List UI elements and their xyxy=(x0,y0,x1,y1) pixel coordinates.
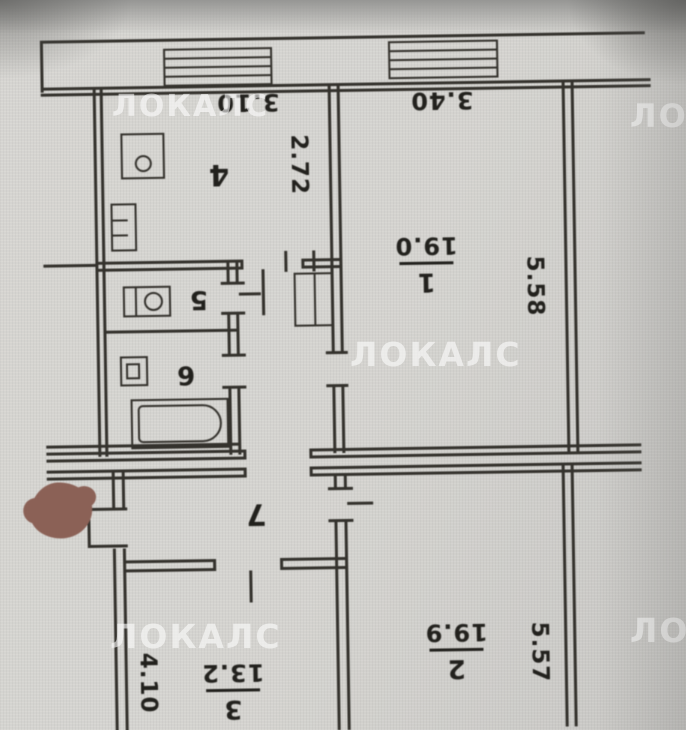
door-tick xyxy=(328,487,353,490)
door-tick xyxy=(284,251,287,272)
door-tick xyxy=(221,312,245,315)
wall-cap xyxy=(240,260,243,270)
door-leaf xyxy=(347,502,373,505)
wall-segment xyxy=(562,463,569,727)
door-tick xyxy=(221,282,245,285)
watermark-clipped: ЛО xyxy=(630,100,686,132)
toilet-tank-line xyxy=(135,288,137,315)
door-leaf xyxy=(249,570,253,602)
sink-detail xyxy=(113,219,128,221)
wall-cap xyxy=(280,558,283,570)
wall-segment xyxy=(332,387,336,453)
room-area: 19.0 xyxy=(394,234,458,259)
balcony-window-hatch xyxy=(163,47,273,87)
washbasin-bowl xyxy=(126,363,140,379)
wall-segment xyxy=(344,521,350,730)
hatch-line xyxy=(388,67,498,71)
wall-segment xyxy=(227,314,231,356)
marker-blob xyxy=(30,482,93,539)
dimension-label: 2.72 xyxy=(284,124,313,204)
washbasin-icon xyxy=(120,356,148,386)
wall-cap xyxy=(301,259,304,269)
wall-stub xyxy=(43,264,95,268)
wall-cap xyxy=(244,468,247,478)
balcony-outline-end xyxy=(40,41,44,93)
door-tick xyxy=(312,250,315,271)
closet-divider xyxy=(314,274,317,324)
wall-segment xyxy=(309,450,641,458)
wall-segment xyxy=(106,329,237,334)
floor-plan: 3.10 3.40 2.72 5.58 5.57 4.10 4 5 6 7 1 … xyxy=(0,0,686,730)
wall-segment xyxy=(112,470,116,511)
wall-segment xyxy=(126,559,216,563)
room-number-label: 5 xyxy=(178,278,221,321)
room-number-label: 6 xyxy=(165,353,208,396)
wall-segment xyxy=(303,258,342,262)
wall-segment xyxy=(337,83,344,353)
hatch-line xyxy=(388,58,498,62)
watermark-clipped: ЛО xyxy=(630,614,686,647)
room-number-label: 4 xyxy=(198,154,241,197)
wall-cap xyxy=(310,466,313,476)
wall-segment xyxy=(303,265,342,269)
wall-segment xyxy=(95,260,243,265)
wall-segment xyxy=(226,260,229,284)
wall-cap xyxy=(309,448,312,458)
balcony-outline xyxy=(40,31,645,44)
wall-segment xyxy=(571,79,580,451)
room-number: 1 xyxy=(417,269,435,295)
wall-cap xyxy=(243,450,246,460)
label-divider xyxy=(399,262,453,266)
stove-burner-icon xyxy=(135,155,152,172)
wall-segment xyxy=(46,457,246,463)
wall-segment xyxy=(47,468,247,474)
door-tick xyxy=(326,351,348,354)
watermark: ЛОКАЛС xyxy=(110,620,282,653)
wall-segment xyxy=(341,387,345,453)
label-divider xyxy=(206,689,260,693)
hatch-line xyxy=(163,56,272,60)
dimension-label: 5.57 xyxy=(525,612,554,692)
room-2-label: 2 19.9 xyxy=(416,611,497,692)
closet xyxy=(294,272,335,327)
wall-segment xyxy=(334,521,340,730)
room-area: 13.2 xyxy=(201,661,265,686)
room-1-label: 1 19.0 xyxy=(386,224,467,305)
wall-segment xyxy=(571,462,578,726)
door-leaf xyxy=(239,292,261,295)
room-area: 19.9 xyxy=(424,620,488,645)
wall-cap xyxy=(213,559,216,571)
door-tick xyxy=(326,384,348,387)
room-number: 2 xyxy=(448,656,466,682)
room-number-label: 7 xyxy=(235,493,278,536)
door-tick xyxy=(328,519,353,522)
bathtub-inner xyxy=(138,404,223,443)
watermark: ЛОКАЛС xyxy=(350,338,522,371)
watermark: ЛОКАЛС xyxy=(112,92,269,122)
wall-segment xyxy=(122,469,126,510)
floor-plan-photo: 3.10 3.40 2.72 5.58 5.57 4.10 4 5 6 7 1 … xyxy=(0,0,686,730)
room-3-label: 3 13.2 xyxy=(192,651,273,730)
hatch-line xyxy=(388,49,498,53)
dimension-label: 3.40 xyxy=(402,86,482,115)
wall-segment xyxy=(310,468,642,476)
hatch-line xyxy=(163,65,272,69)
kitchen-sink-icon xyxy=(110,203,137,251)
door-tick xyxy=(87,507,127,511)
wall-segment xyxy=(95,267,243,272)
hatch-line xyxy=(163,74,272,78)
label-divider xyxy=(429,648,483,652)
wall-segment xyxy=(47,475,247,481)
wall-segment xyxy=(236,314,240,356)
door-leaf xyxy=(261,269,265,315)
sink-detail xyxy=(113,234,128,236)
wall-segment xyxy=(46,450,246,456)
wall-segment xyxy=(126,568,216,572)
door-tick xyxy=(88,544,128,548)
wall-segment xyxy=(562,79,571,451)
dimension-label: 5.58 xyxy=(520,246,549,326)
room-number: 3 xyxy=(224,696,242,722)
balcony-window-hatch xyxy=(388,40,499,80)
door-tick xyxy=(222,354,246,357)
wall-segment xyxy=(235,260,238,284)
door-tick xyxy=(222,386,246,389)
